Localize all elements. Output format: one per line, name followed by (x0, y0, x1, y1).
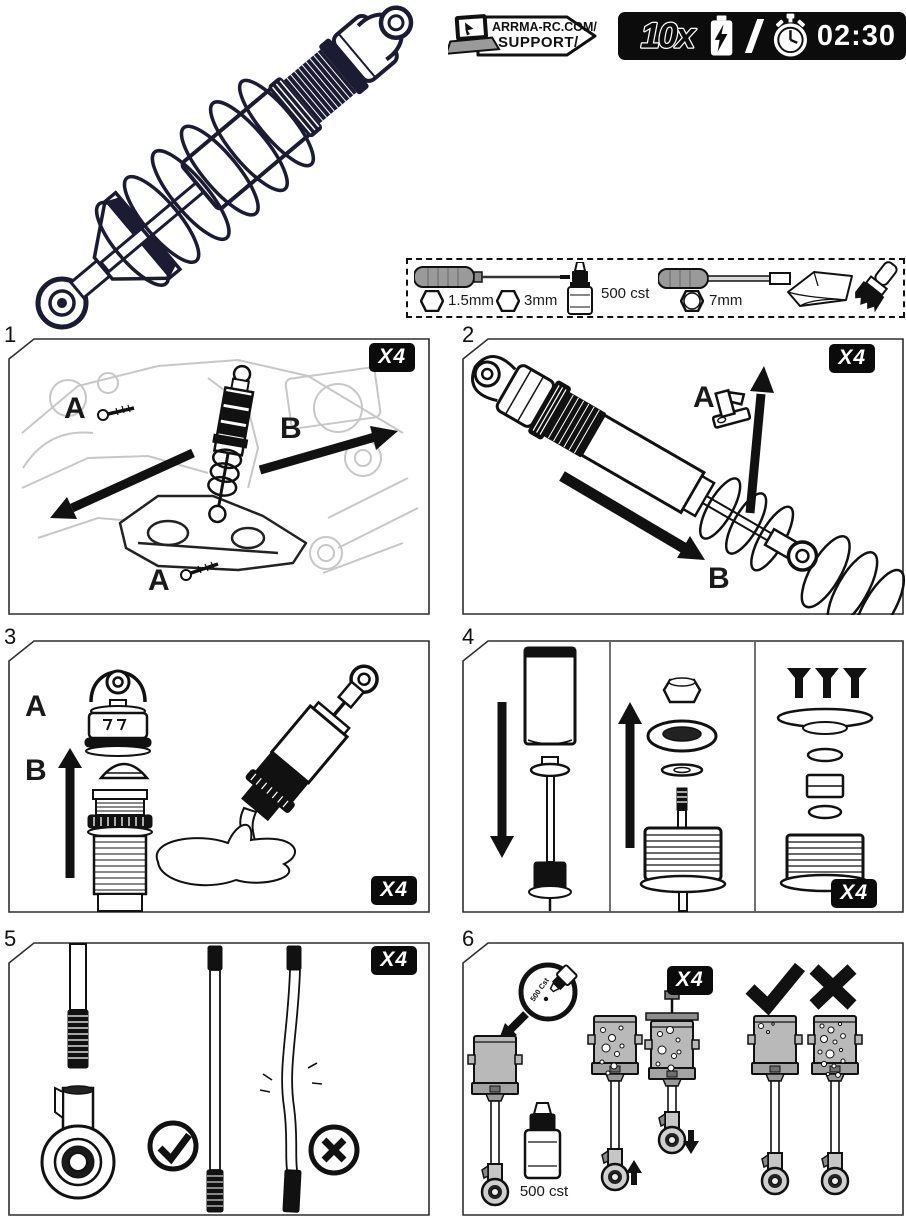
step-1-panel: A B A X4 (8, 338, 431, 615)
step-6-quantity-badge: X4 (667, 966, 713, 995)
step-1-label-a-bottom: A (148, 566, 170, 596)
stopwatch-icon (770, 13, 811, 59)
step-2-quantity-badge: X4 (829, 344, 875, 373)
step-2-illustration (462, 338, 905, 615)
slash-divider (745, 19, 764, 53)
repeat-count-text: 10x (641, 17, 697, 56)
step-1-label-a-top: A (64, 394, 86, 424)
shock-shaft-closeup (68, 944, 88, 1068)
repeat-count: 10x (628, 14, 706, 58)
step-2-label-b: B (708, 564, 730, 594)
step-5-quantity-badge: X4 (371, 946, 417, 975)
straight-shaft (207, 946, 223, 1212)
support-url-line1: ARRMA-RC.COM/ (492, 21, 597, 34)
shock-body-part (88, 790, 152, 911)
nut-driver-icon (658, 266, 796, 292)
cross-circle-icon (311, 1127, 357, 1173)
step-4-panel: X4 (462, 640, 905, 913)
oil-bottle-icon (565, 262, 595, 315)
step-1-label-b: B (280, 414, 302, 444)
step-2-panel: A B X4 (462, 338, 905, 615)
step-5-illustration (8, 942, 431, 1216)
nut-7mm-label: 7mm (709, 293, 742, 308)
hex-3mm-icon (496, 290, 520, 312)
oil-bottle-icon (525, 1103, 560, 1178)
step-2-label-a: A (693, 383, 715, 413)
manual-page: ARRMA-RC.COM/ SUPPORT/ 10x 02:30 (0, 0, 906, 1222)
step-6-oil-label: 500 cst (508, 1184, 580, 1199)
battery-icon (706, 14, 737, 58)
required-tools-box: 1.5mm 3mm 500 cst 7mm (406, 258, 905, 318)
step-4-quantity-badge: X4 (831, 879, 877, 908)
step-1-quantity-badge: X4 (369, 343, 415, 372)
cloth-icon (780, 266, 858, 312)
step-1-illustration (8, 338, 431, 615)
step-6-panel: 500 Cst (462, 942, 905, 1216)
stats-badge: 10x 02:30 (618, 12, 906, 60)
hex-1-5mm-label: 1.5mm (448, 293, 494, 308)
timer-text: 02:30 (817, 22, 896, 51)
support-badge: ARRMA-RC.COM/ SUPPORT/ (448, 12, 602, 60)
step-3-label-a: A (25, 692, 47, 722)
hex-1-5mm-icon (420, 290, 444, 312)
step-5-panel: X4 (8, 942, 431, 1216)
step-3-quantity-badge: X4 (371, 876, 417, 905)
check-circle-icon (150, 1123, 196, 1169)
hex-3mm-label: 3mm (524, 293, 557, 308)
hero-shock-illustration (6, 0, 434, 336)
brush-icon (850, 261, 902, 315)
shock-cap-part (85, 671, 151, 756)
support-url-line2: SUPPORT/ (498, 35, 579, 50)
step-3-label-b: B (25, 756, 47, 786)
step-3-panel: A B X4 (8, 640, 431, 913)
step-4-illustration (462, 640, 905, 913)
hex-driver-icon (414, 264, 574, 290)
oil-cst-label: 500 cst (601, 286, 649, 301)
step-3-illustration (8, 640, 431, 913)
hex-7mm-icon (680, 290, 704, 312)
